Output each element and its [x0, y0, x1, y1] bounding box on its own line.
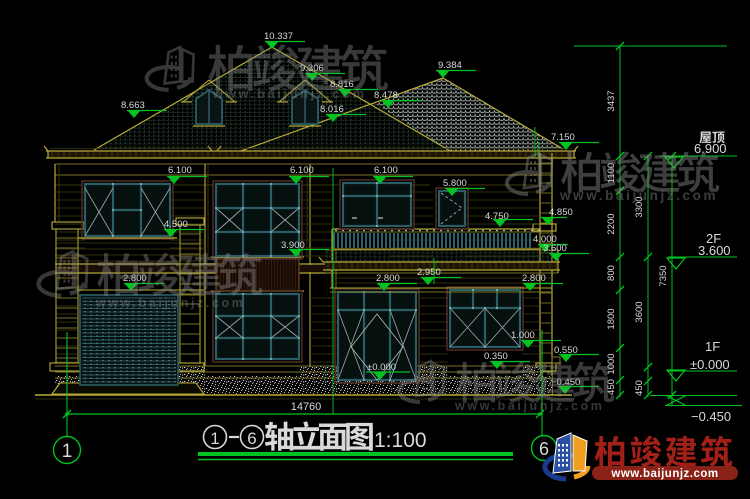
svg-text:−0.450: −0.450: [691, 409, 731, 424]
svg-text:3.600: 3.600: [543, 243, 567, 254]
svg-text:1.000: 1.000: [511, 330, 535, 341]
svg-text:8.478: 8.478: [374, 90, 398, 101]
svg-text:5.800: 5.800: [443, 178, 467, 189]
svg-text:450: 450: [634, 380, 645, 396]
svg-text:1: 1: [62, 441, 73, 462]
svg-text:6.100: 6.100: [374, 165, 398, 176]
svg-text:±0.000: ±0.000: [690, 357, 730, 372]
svg-text:3437: 3437: [606, 90, 617, 111]
svg-text:±0.000: ±0.000: [367, 362, 396, 373]
svg-text:2200: 2200: [606, 213, 617, 234]
svg-text:6: 6: [247, 429, 256, 448]
svg-text:7350: 7350: [658, 265, 669, 286]
svg-text:0.350: 0.350: [484, 351, 508, 362]
svg-text:9.384: 9.384: [438, 60, 462, 71]
svg-text:1:100: 1:100: [374, 429, 427, 452]
svg-text:4.500: 4.500: [164, 219, 188, 230]
svg-text:10.337: 10.337: [264, 31, 293, 42]
svg-text:4.850: 4.850: [549, 207, 573, 218]
svg-text:www.baijunjz.com: www.baijunjz.com: [95, 296, 245, 310]
svg-text:800: 800: [606, 265, 617, 281]
svg-text:1000: 1000: [606, 353, 617, 374]
svg-text:www.baijunjz.com: www.baijunjz.com: [610, 468, 718, 480]
svg-text:14760: 14760: [291, 401, 322, 413]
svg-text:www.baijunjz.com: www.baijunjz.com: [212, 86, 367, 101]
svg-text:1800: 1800: [606, 308, 617, 329]
svg-text:1F: 1F: [705, 339, 720, 354]
svg-text:1: 1: [210, 429, 219, 448]
svg-text:6.900: 6.900: [694, 141, 727, 156]
svg-text:www.baijunjz.com: www.baijunjz.com: [454, 399, 604, 413]
svg-text:2.800: 2.800: [522, 273, 546, 284]
svg-text:7.150: 7.150: [551, 132, 575, 143]
svg-text:3600: 3600: [634, 301, 645, 322]
svg-text:3.600: 3.600: [698, 243, 731, 258]
svg-text:www.baijunjz.com: www.baijunjz.com: [559, 188, 718, 203]
svg-text:4.750: 4.750: [485, 211, 509, 222]
svg-text:2.950: 2.950: [417, 267, 441, 278]
svg-text:8.016: 8.016: [320, 104, 344, 115]
svg-text:6: 6: [539, 439, 549, 459]
svg-text:6.100: 6.100: [168, 165, 192, 176]
svg-text:8.663: 8.663: [121, 100, 145, 111]
svg-text:3.900: 3.900: [281, 240, 305, 251]
svg-text:6.100: 6.100: [290, 165, 314, 176]
svg-text:2.800: 2.800: [376, 273, 400, 284]
svg-text:0.550: 0.550: [554, 345, 578, 356]
